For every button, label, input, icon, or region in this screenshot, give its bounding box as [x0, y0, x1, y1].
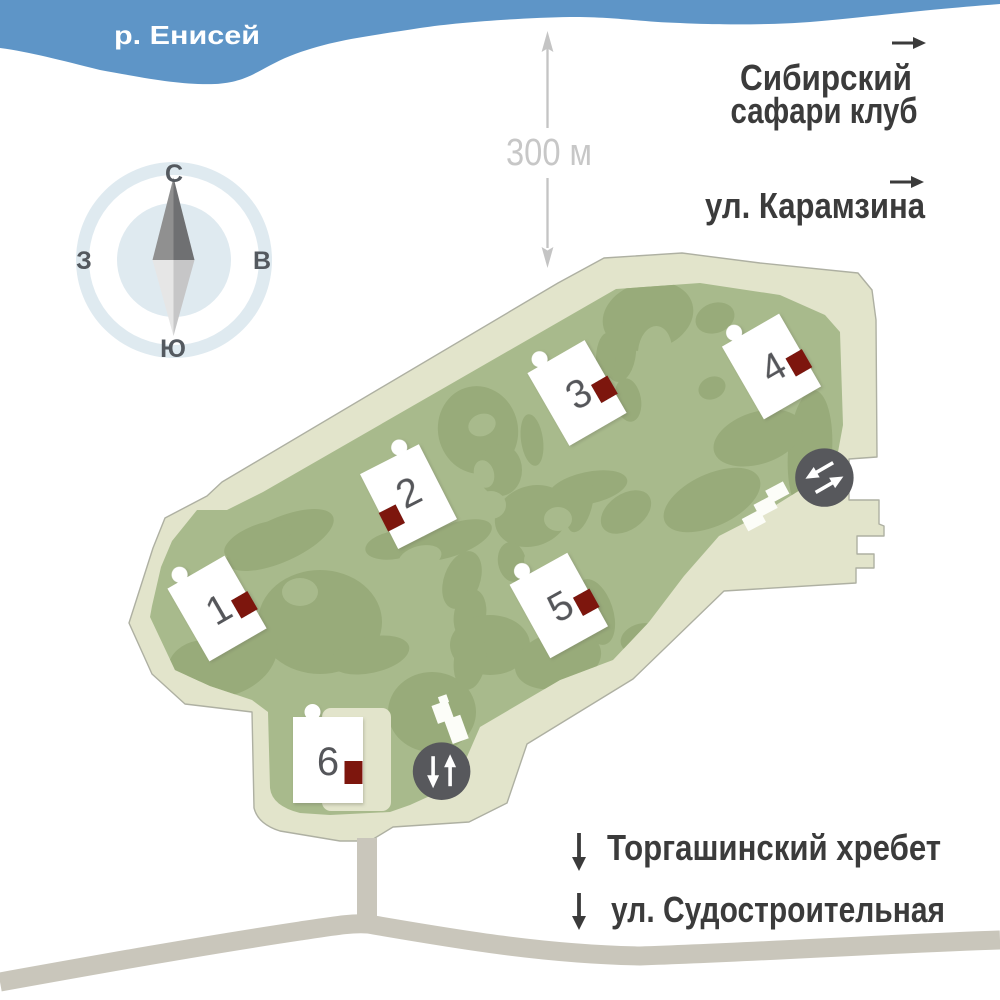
- svg-text:сафари клуб: сафари клуб: [731, 90, 918, 131]
- svg-text:Ю: Ю: [160, 335, 186, 363]
- svg-text:ул. Карамзина: ул. Карамзина: [705, 185, 926, 226]
- svg-text:р. Енисей: р. Енисей: [114, 20, 260, 50]
- svg-text:З: З: [76, 247, 92, 275]
- svg-text:300 м: 300 м: [506, 132, 592, 174]
- svg-text:Торгашинский хребет: Торгашинский хребет: [607, 827, 941, 868]
- svg-text:ул. Судостроительная: ул. Судостроительная: [611, 889, 945, 930]
- svg-text:С: С: [165, 160, 183, 188]
- svg-text:В: В: [253, 247, 271, 275]
- svg-text:6: 6: [317, 740, 339, 784]
